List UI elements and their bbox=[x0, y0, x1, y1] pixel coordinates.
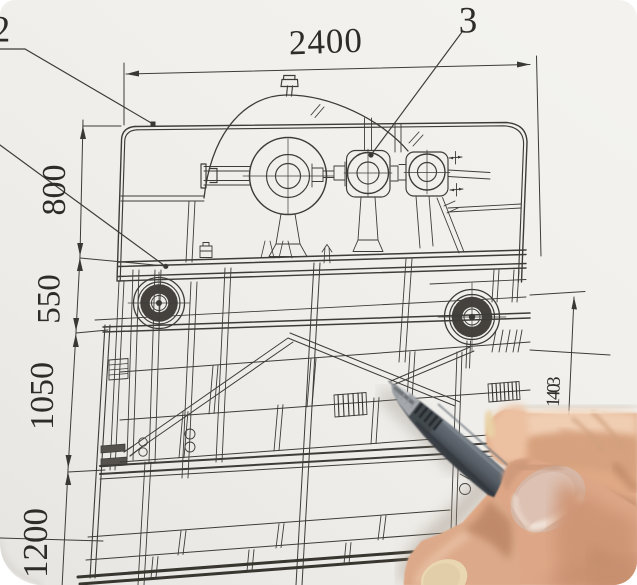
svg-text:1200: 1200 bbox=[16, 508, 55, 578]
svg-text:3: 3 bbox=[459, 0, 478, 41]
svg-text:2: 2 bbox=[0, 9, 10, 50]
svg-text:800: 800 bbox=[36, 165, 73, 216]
svg-text:2400: 2400 bbox=[288, 21, 363, 63]
svg-text:1050: 1050 bbox=[24, 362, 61, 430]
svg-text:550: 550 bbox=[32, 274, 68, 324]
